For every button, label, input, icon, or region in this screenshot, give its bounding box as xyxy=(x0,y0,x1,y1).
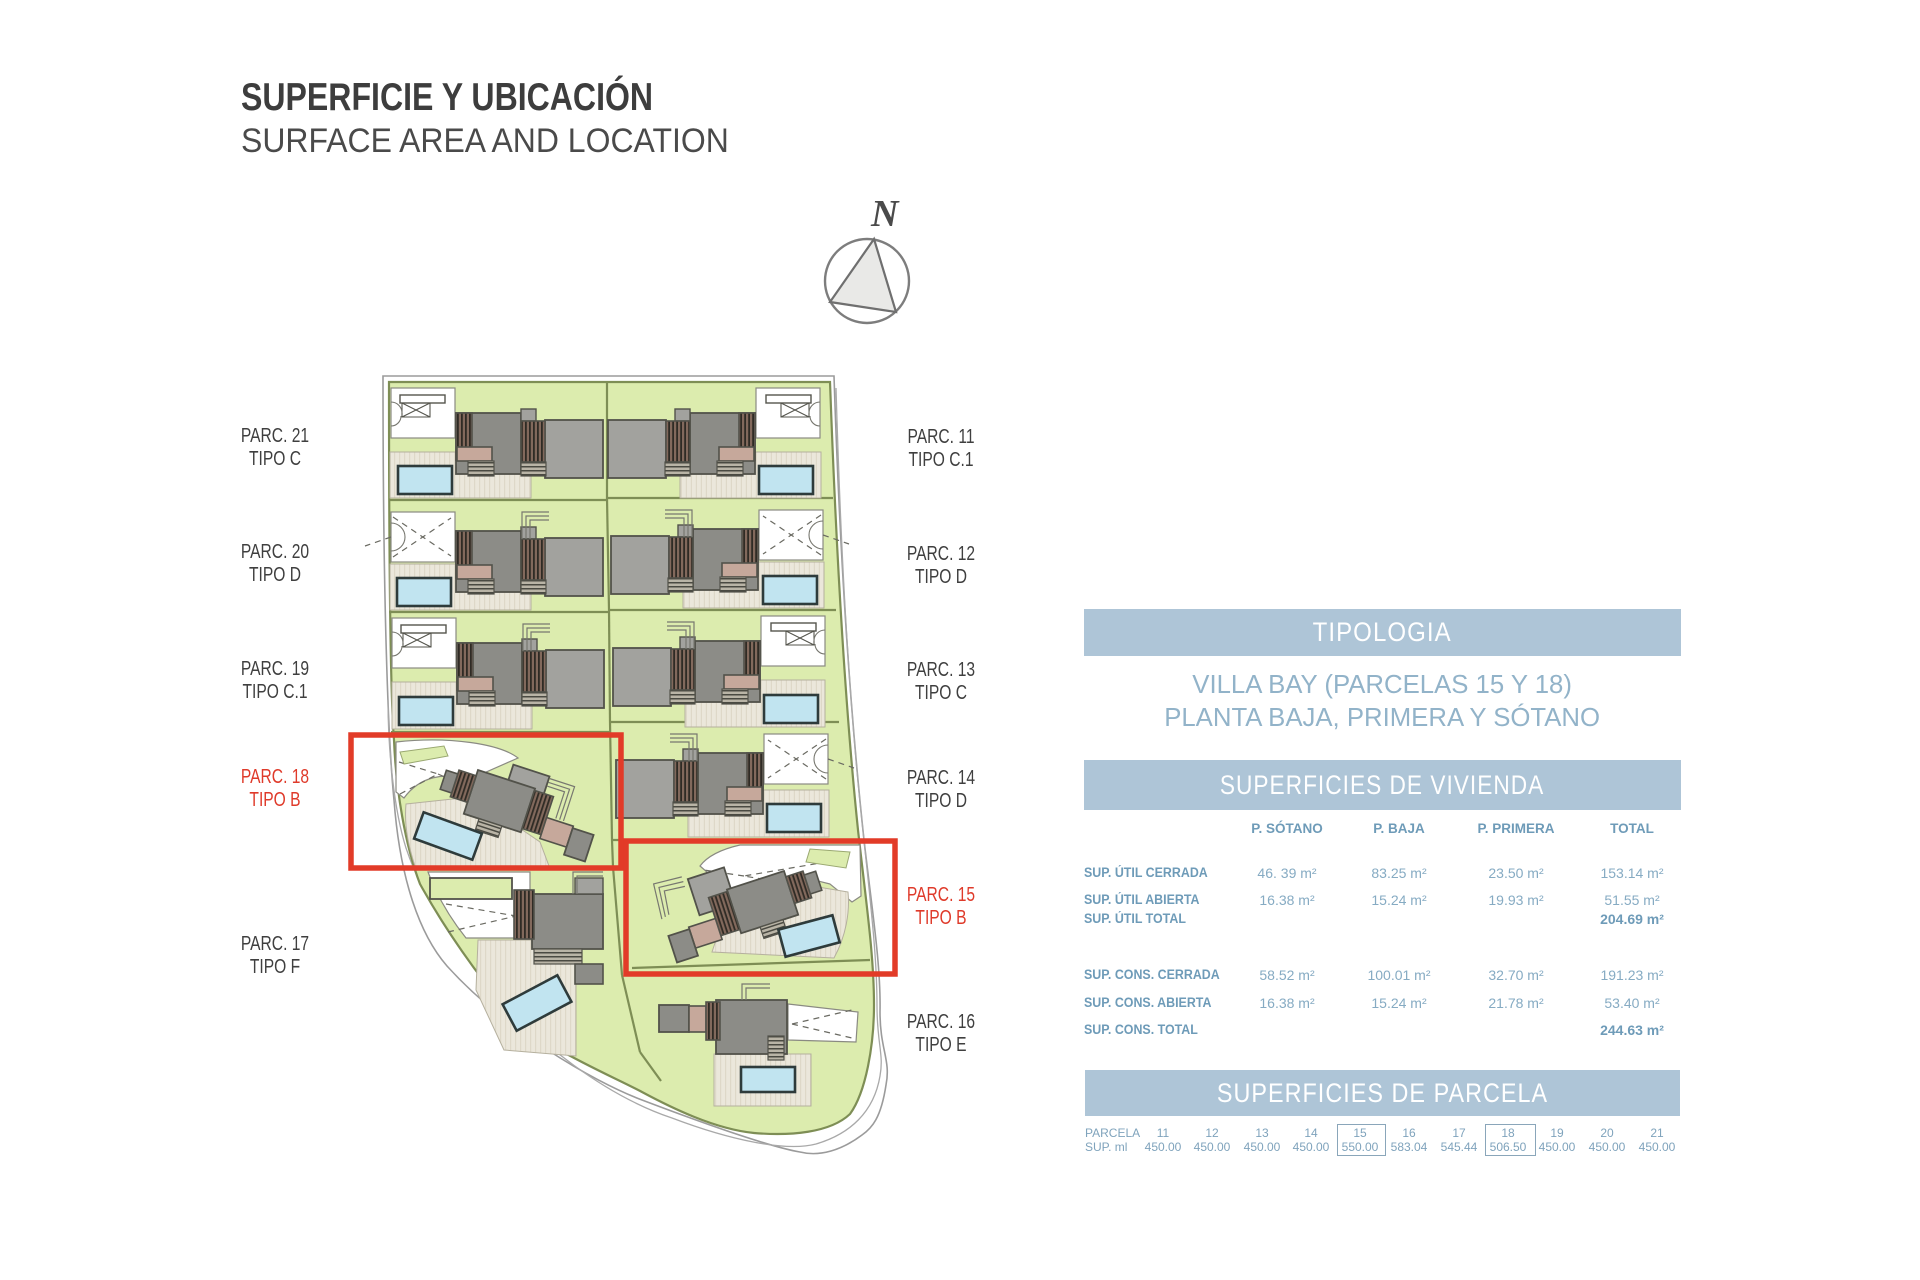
svg-text:N: N xyxy=(870,193,900,235)
